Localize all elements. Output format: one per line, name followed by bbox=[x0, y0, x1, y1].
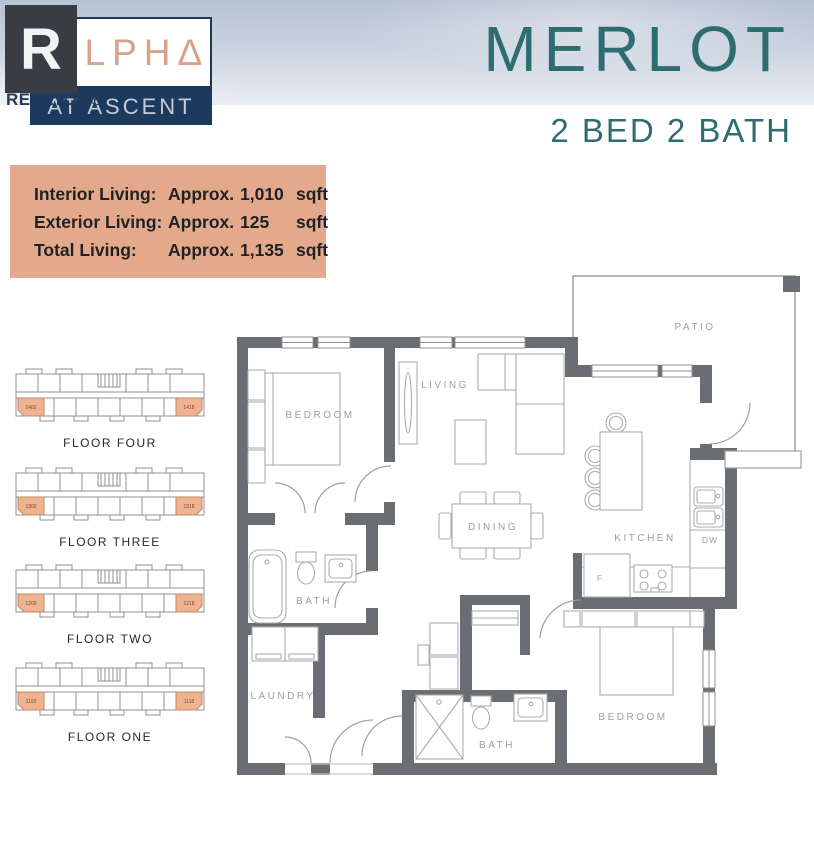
unit-number-right: 1318 bbox=[183, 504, 194, 510]
stat-unit: sqft bbox=[296, 208, 328, 236]
nightstand bbox=[564, 611, 580, 627]
realtor-wordmark: REALTOR® bbox=[6, 90, 103, 110]
closet-double-door-left-arc bbox=[275, 483, 305, 513]
stat-label: Total Living: bbox=[34, 236, 168, 264]
realtor-logo: R bbox=[5, 5, 77, 93]
room-label-fridge: F bbox=[597, 573, 603, 583]
room-label-bath2: BATH bbox=[479, 740, 515, 751]
unit-number-left: 1202 bbox=[25, 601, 36, 607]
room-label-dishwasher: DW bbox=[702, 535, 718, 545]
laundry-door-arc bbox=[285, 737, 311, 763]
stat-approx: Approx. bbox=[168, 236, 240, 264]
stats-row-exterior: Exterior Living: Approx. 125 sqft bbox=[34, 208, 326, 236]
room-label-dining: DINING bbox=[468, 522, 518, 533]
plan-title: MERLOT bbox=[483, 12, 792, 86]
room-label-patio: PATIO bbox=[674, 322, 715, 333]
stat-unit: sqft bbox=[296, 180, 328, 208]
linen-closet bbox=[430, 657, 458, 689]
dining-chair bbox=[494, 492, 520, 504]
tv bbox=[405, 373, 412, 433]
room-label-bedroom1: BEDROOM bbox=[285, 410, 354, 421]
floor-key-one: 1102 1118 FLOOR ONE bbox=[8, 660, 212, 744]
stat-value: 1,135 bbox=[240, 236, 296, 264]
dining-chair bbox=[460, 492, 486, 504]
shelf bbox=[418, 645, 429, 665]
floor-key-four: 1402 1418 FLOOR FOUR bbox=[8, 366, 212, 450]
closet-double-door-right-arc bbox=[315, 483, 345, 513]
realtor-r-icon: R bbox=[20, 16, 62, 83]
floor-label: FLOOR TWO bbox=[8, 632, 212, 646]
room-label-laundry: LAUNDRY bbox=[250, 691, 315, 702]
floor-key-two: 1202 1218 FLOOR TWO bbox=[8, 562, 212, 646]
dining-chair bbox=[531, 513, 543, 539]
floor-diagram: 1402 1418 bbox=[8, 366, 212, 424]
dining-chair bbox=[494, 547, 520, 559]
floor-diagram: 1302 1318 bbox=[8, 465, 212, 523]
patio-planter bbox=[725, 451, 801, 468]
stat-approx: Approx. bbox=[168, 180, 240, 208]
toilet bbox=[471, 696, 491, 706]
room-label-living: LIVING bbox=[421, 380, 469, 391]
bed2 bbox=[600, 627, 673, 695]
patio-pillar bbox=[783, 276, 800, 292]
floor-label: FLOOR ONE bbox=[8, 730, 212, 744]
linen-closet bbox=[430, 623, 458, 655]
stats-row-interior: Interior Living: Approx. 1,010 sqft bbox=[34, 180, 326, 208]
floor-diagram: 1202 1218 bbox=[8, 562, 212, 620]
closet-shelves bbox=[248, 450, 265, 483]
plan-subtitle: 2 BED 2 BATH bbox=[550, 112, 792, 150]
pillow bbox=[582, 611, 635, 627]
toilet bbox=[296, 552, 316, 562]
floor-label: FLOOR THREE bbox=[8, 535, 212, 549]
entry-door-arc bbox=[330, 720, 373, 763]
stat-value: 1,010 bbox=[240, 180, 296, 208]
unit-number-right: 1418 bbox=[183, 405, 194, 411]
patio-door-arc bbox=[709, 403, 750, 444]
bedroom1-door-arc bbox=[355, 466, 391, 502]
flyer-page: ΛLPHΔ AT ASCENT R REALTOR® MERLOT 2 BED … bbox=[0, 0, 814, 863]
kitchen-island bbox=[600, 432, 642, 510]
stat-approx: Approx. bbox=[168, 208, 240, 236]
unit-number-left: 1102 bbox=[26, 699, 37, 705]
stat-label: Interior Living: bbox=[34, 180, 168, 208]
fridge bbox=[584, 554, 630, 597]
closet-shelves bbox=[248, 402, 265, 448]
room-label-bath1: BATH bbox=[296, 596, 332, 607]
stat-label: Exterior Living: bbox=[34, 208, 168, 236]
unit-number-left: 1402 bbox=[25, 405, 36, 411]
coffee-table bbox=[455, 420, 486, 464]
closet-shelves bbox=[248, 370, 265, 400]
floor-key-three: 1302 1318 FLOOR THREE bbox=[8, 465, 212, 549]
floor-label: FLOOR FOUR bbox=[8, 436, 212, 450]
stats-row-total: Total Living: Approx. 1,135 sqft bbox=[34, 236, 326, 264]
bath2-hall-door-arc bbox=[362, 716, 402, 756]
floor-diagram: 1102 1118 bbox=[8, 660, 212, 718]
dining-chair bbox=[439, 513, 451, 539]
main-floor-plan: PATIO LIVING BEDROOM DINING KITCHEN DW F… bbox=[232, 270, 814, 780]
unit-number-right: 1118 bbox=[184, 699, 195, 705]
nightstand bbox=[690, 611, 704, 627]
stat-unit: sqft bbox=[296, 236, 328, 264]
dining-chair bbox=[460, 547, 486, 559]
room-label-bedroom2: BEDROOM bbox=[598, 712, 667, 723]
doors-layer bbox=[275, 403, 750, 774]
unit-number-left: 1302 bbox=[25, 504, 36, 510]
unit-number-right: 1218 bbox=[183, 601, 194, 607]
pillow bbox=[637, 611, 690, 627]
stats-box: Interior Living: Approx. 1,010 sqft Exte… bbox=[10, 165, 326, 278]
stat-value: 125 bbox=[240, 208, 296, 236]
room-label-kitchen: KITCHEN bbox=[614, 533, 675, 544]
